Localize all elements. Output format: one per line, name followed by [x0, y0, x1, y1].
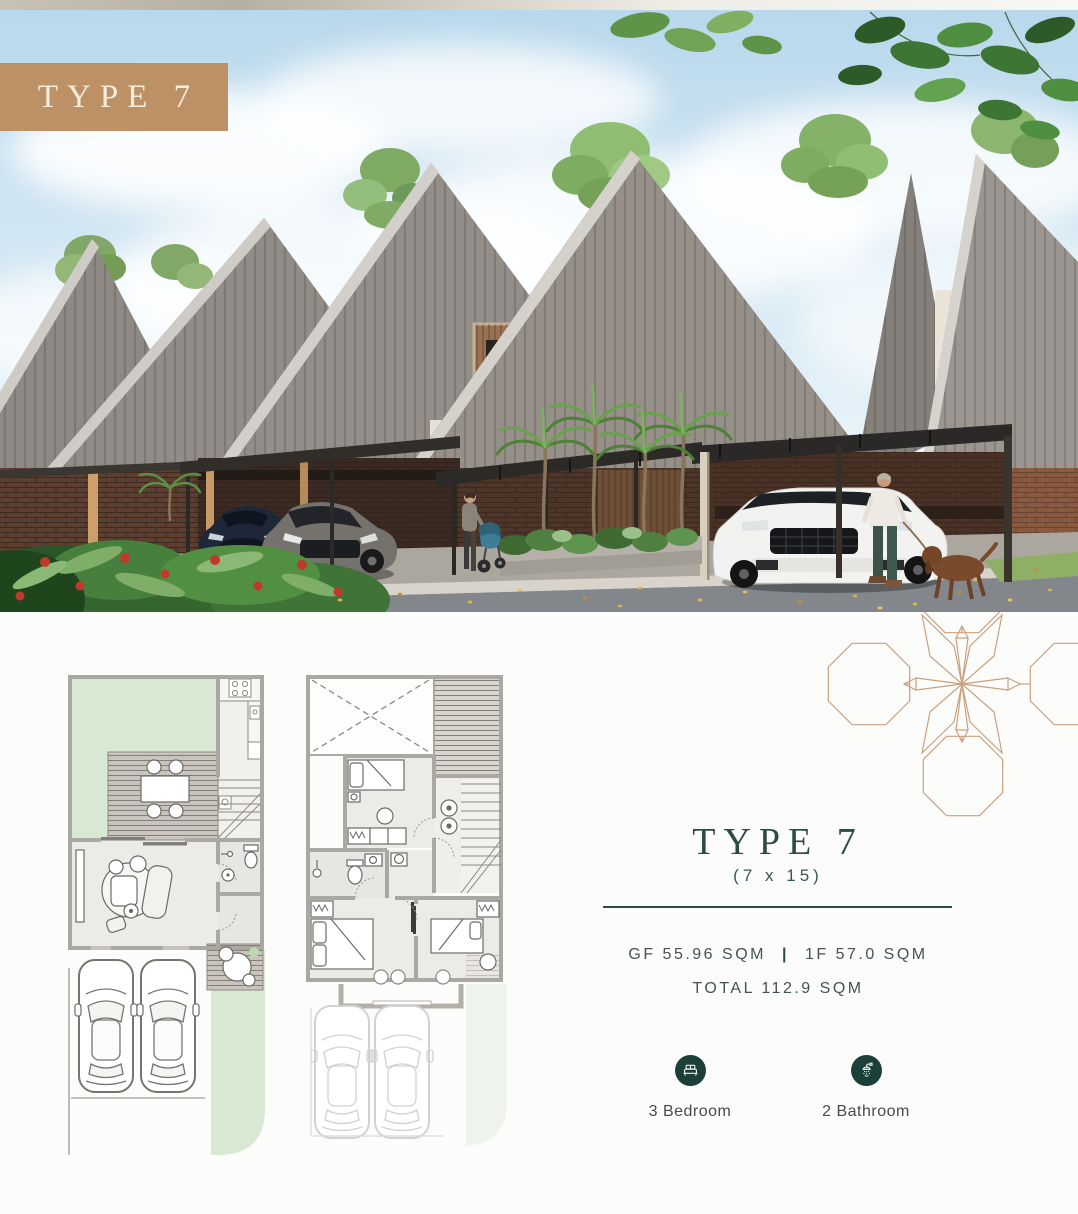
top-strip — [0, 0, 1078, 10]
brochure-page: TYPE 7 — [0, 0, 1078, 1214]
area-total: TOTAL 112.9 SQM — [528, 980, 1028, 998]
area-separator: | — [782, 946, 789, 963]
type-badge: TYPE 7 — [0, 63, 228, 131]
geometric-flower-ornament — [810, 612, 1078, 830]
plan-areas: GF 55.96 SQM|1F 57.0 SQM — [528, 946, 1028, 964]
bed-icon — [675, 1055, 706, 1086]
upper-deck — [434, 677, 501, 776]
carport-cars — [75, 960, 199, 1092]
type-badge-label: TYPE 7 — [29, 79, 199, 116]
shower-icon — [851, 1055, 882, 1086]
first-floor-plan — [303, 668, 507, 1150]
parapet — [341, 984, 461, 1006]
white-suv — [713, 488, 947, 588]
feature-bathroom-label: 2 Bathroom — [822, 1103, 910, 1121]
feature-list: 3 Bedroom 2 Bathroom — [578, 1055, 978, 1121]
plan-title: TYPE 7 — [578, 820, 978, 864]
ghost-cars — [311, 1006, 433, 1138]
plan-dimensions: (7 x 15) — [578, 866, 978, 886]
area-first-floor: 1F 57.0 SQM — [805, 946, 928, 963]
feature-bathroom: 2 Bathroom — [801, 1055, 931, 1121]
feature-bedroom: 3 Bedroom — [625, 1055, 755, 1121]
ground-floor-plan — [65, 668, 265, 1155]
area-ground-floor: GF 55.96 SQM — [628, 946, 766, 963]
feature-bedroom-label: 3 Bedroom — [649, 1103, 732, 1121]
divider — [603, 906, 952, 908]
hero-photo: TYPE 7 — [0, 10, 1078, 612]
